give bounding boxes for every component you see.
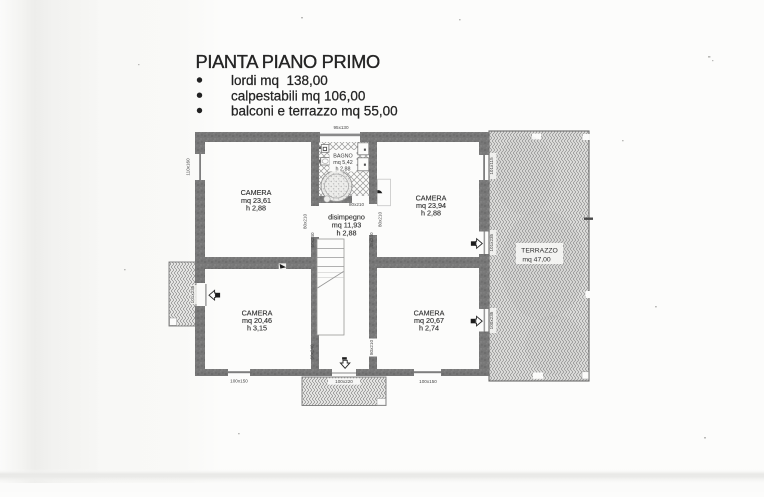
svg-text:110x160: 110x160: [186, 158, 191, 176]
svg-text:h 2,88: h 2,88: [421, 208, 441, 217]
svg-text:h 2,74: h 2,74: [419, 323, 439, 332]
svg-text:mq 5,42: mq 5,42: [333, 160, 352, 166]
svg-text:100x150: 100x150: [230, 379, 248, 384]
svg-text:101x235: 101x235: [190, 285, 195, 303]
svg-text:PIANTA PIANO PRIMO: PIANTA PIANO PRIMO: [196, 51, 380, 72]
svg-text:95x130: 95x130: [333, 125, 349, 130]
svg-text:lordi mq 138,00: lordi mq 138,00: [231, 73, 328, 88]
svg-text:80x210: 80x210: [349, 202, 365, 207]
svg-text:h 2,88: h 2,88: [337, 228, 357, 237]
svg-text:101x235: 101x235: [489, 233, 494, 251]
svg-text:h 3,15: h 3,15: [247, 323, 267, 332]
svg-text:100x235: 100x235: [489, 311, 494, 329]
svg-text:h 2,88: h 2,88: [246, 204, 266, 213]
svg-text:mq 47,00: mq 47,00: [522, 256, 551, 263]
svg-text:100x220: 100x220: [335, 379, 353, 384]
svg-text:balconi e terrazzo mq 55,00: balconi e terrazzo mq 55,00: [231, 103, 398, 118]
svg-text:60x240: 60x240: [310, 344, 315, 360]
svg-text:101x115: 101x115: [489, 157, 494, 175]
svg-text:80x210: 80x210: [369, 340, 374, 356]
svg-text:BAGNO: BAGNO: [333, 154, 352, 160]
svg-text:100x150: 100x150: [419, 379, 437, 384]
svg-text:h 2,88: h 2,88: [336, 166, 351, 172]
svg-text:calpestabili mq 106,00: calpestabili mq 106,00: [231, 88, 365, 103]
svg-text:45x240: 45x240: [369, 232, 374, 248]
svg-text:60x240: 60x240: [310, 232, 315, 248]
svg-text:TERRAZZO: TERRAZZO: [521, 248, 558, 255]
svg-text:80x210: 80x210: [378, 212, 383, 228]
svg-text:80x210: 80x210: [303, 214, 308, 230]
